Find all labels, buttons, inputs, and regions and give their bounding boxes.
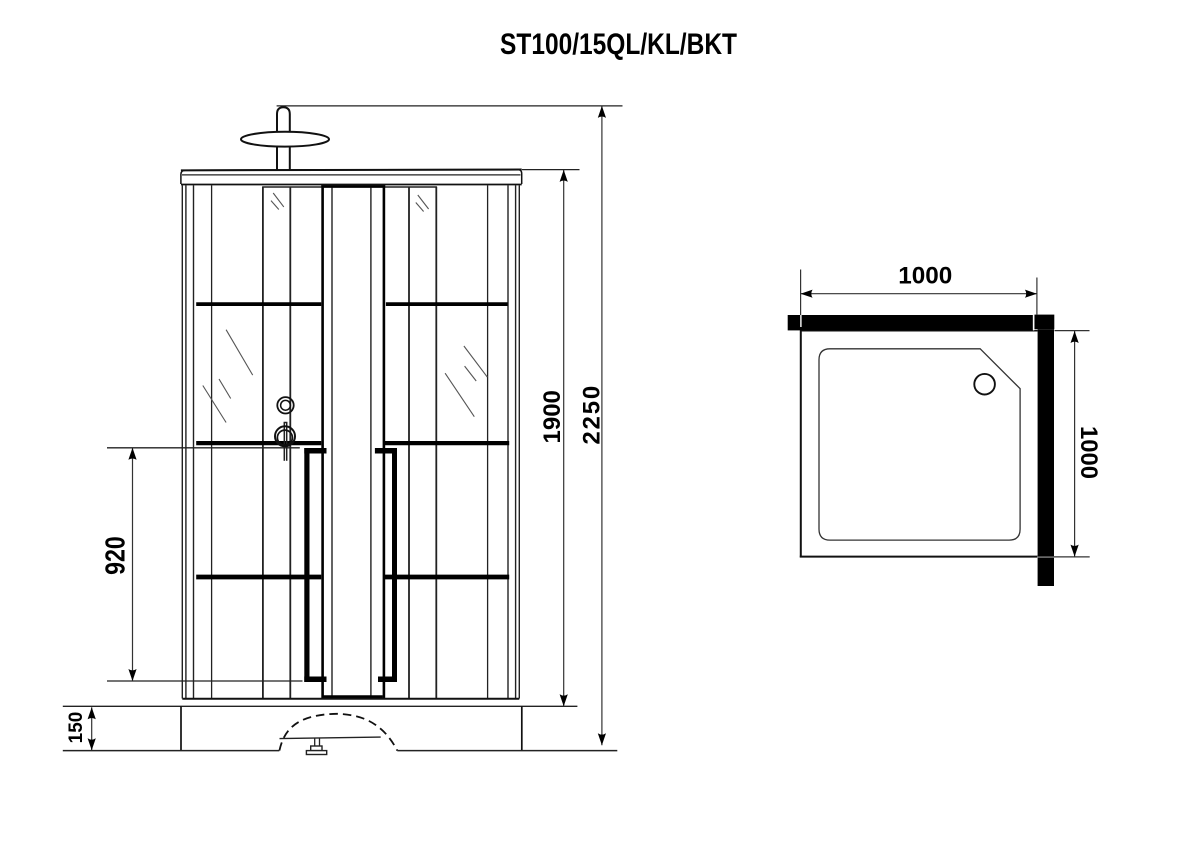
- svg-text:1900: 1900: [539, 390, 566, 443]
- svg-text:150: 150: [66, 712, 87, 744]
- svg-text:2250: 2250: [578, 384, 605, 445]
- svg-text:920: 920: [100, 536, 131, 575]
- svg-text:ST100/15QL/KL/BKT: ST100/15QL/KL/BKT: [500, 28, 737, 61]
- svg-text:1000: 1000: [1075, 426, 1102, 479]
- svg-text:1000: 1000: [898, 263, 952, 290]
